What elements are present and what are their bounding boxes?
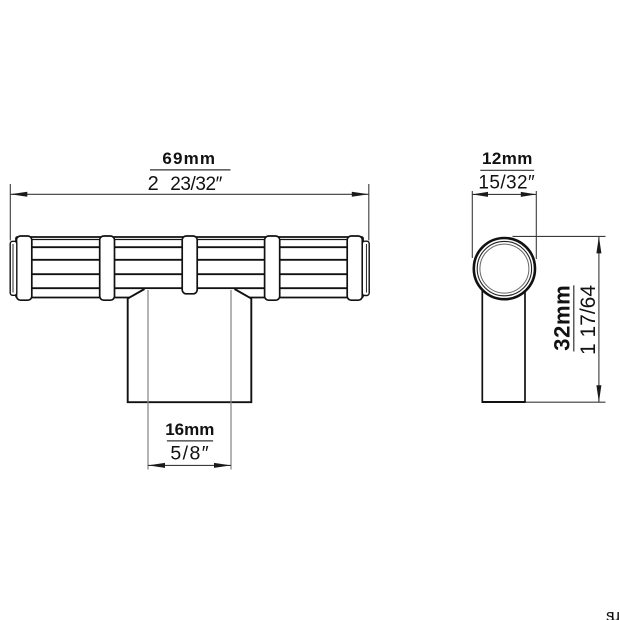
svg-text:32mm: 32mm: [549, 285, 574, 351]
svg-text:16mm: 16mm: [165, 420, 214, 439]
svg-text:12mm: 12mm: [482, 149, 532, 168]
svg-text:5/8″: 5/8″: [170, 442, 208, 464]
svg-text:69mm: 69mm: [162, 149, 215, 168]
svg-text:su: su: [606, 607, 620, 620]
svg-text:1 17/64: 1 17/64: [577, 285, 600, 355]
svg-text:23/32″: 23/32″: [170, 174, 222, 195]
svg-text:15/32″: 15/32″: [478, 172, 535, 193]
svg-text:2: 2: [148, 173, 159, 195]
